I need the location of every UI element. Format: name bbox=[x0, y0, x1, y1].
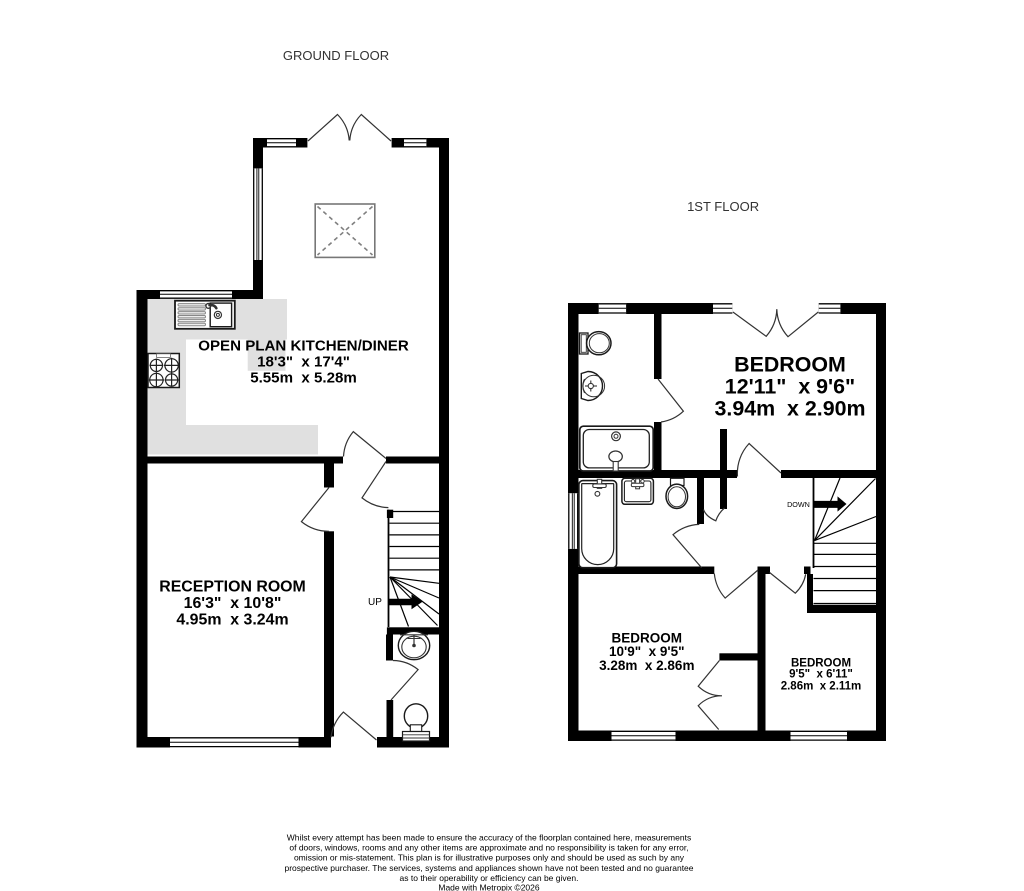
svg-text:UP: UP bbox=[368, 597, 382, 608]
svg-text:prospective purchaser. The ser: prospective purchaser. The services, sys… bbox=[284, 863, 693, 873]
svg-text:1ST FLOOR: 1ST FLOOR bbox=[687, 199, 759, 214]
svg-text:Whilst every attempt has been: Whilst every attempt has been made to en… bbox=[287, 832, 691, 842]
svg-text:Made with Metropix ©2026: Made with Metropix ©2026 bbox=[438, 882, 540, 891]
svg-text:OPEN PLAN KITCHEN/DINER: OPEN PLAN KITCHEN/DINER bbox=[198, 338, 409, 355]
svg-text:GROUND FLOOR: GROUND FLOOR bbox=[283, 48, 389, 63]
svg-text:DOWN: DOWN bbox=[787, 500, 810, 509]
svg-text:12'11" x 9'6": 12'11" x 9'6" bbox=[725, 374, 855, 398]
svg-text:4.95m x 3.24m: 4.95m x 3.24m bbox=[176, 612, 288, 629]
svg-text:BEDROOM: BEDROOM bbox=[791, 658, 851, 670]
svg-text:3.28m x 2.86m: 3.28m x 2.86m bbox=[599, 658, 694, 673]
svg-text:9'5" x 6'11": 9'5" x 6'11" bbox=[789, 669, 853, 681]
svg-text:2.86m x 2.11m: 2.86m x 2.11m bbox=[781, 681, 862, 693]
svg-text:RECEPTION ROOM: RECEPTION ROOM bbox=[159, 578, 306, 595]
svg-text:5.55m x 5.28m: 5.55m x 5.28m bbox=[250, 369, 357, 386]
svg-text:18'3" x 17'4": 18'3" x 17'4" bbox=[257, 354, 350, 371]
svg-text:3.94m x 2.90m: 3.94m x 2.90m bbox=[714, 396, 865, 420]
svg-text:omission or mis-statement. Thi: omission or mis-statement. This plan is … bbox=[294, 853, 685, 863]
svg-text:16'3" x 10'8": 16'3" x 10'8" bbox=[184, 595, 282, 612]
svg-text:of doors, windows, rooms and a: of doors, windows, rooms and any other i… bbox=[289, 842, 688, 852]
svg-text:BEDROOM: BEDROOM bbox=[734, 352, 846, 376]
